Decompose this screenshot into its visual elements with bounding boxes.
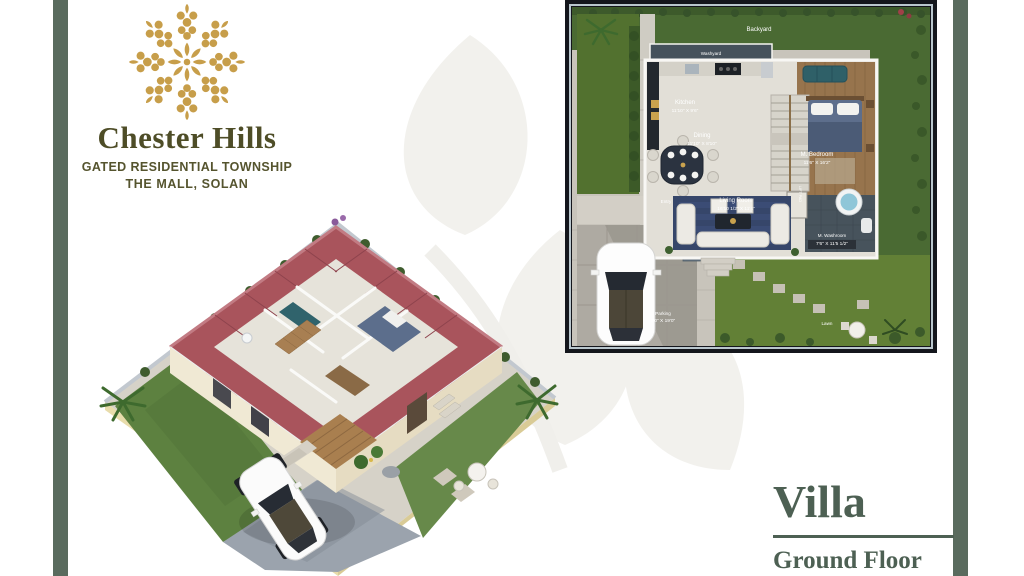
label-lift-pad: LIFT PAD	[798, 186, 802, 203]
title-divider	[773, 535, 954, 538]
label-parking: Parking	[655, 311, 671, 316]
label-washroom: M. Washroom	[818, 233, 847, 238]
svg-text:11'10" X 8'10": 11'10" X 8'10"	[687, 141, 717, 147]
label-bedroom: M. Bedroom	[801, 152, 834, 158]
floor-plan-panel: Backyard Washyard Kitchen 11'10" X 9'6" …	[565, 0, 937, 358]
label-living-room: Living Room	[719, 198, 752, 204]
brand-block: Chester Hills GATED RESIDENTIAL TOWNSHIP…	[77, 0, 297, 191]
page-title: Villa	[773, 474, 954, 529]
label-backyard: Backyard	[746, 27, 771, 33]
svg-text:9'0" X 19'0": 9'0" X 19'0"	[651, 318, 676, 324]
left-accent-bar	[53, 0, 68, 576]
svg-text:7'6" X 11'5 1/2": 7'6" X 11'5 1/2"	[816, 241, 848, 247]
mandala-flower-logo-icon	[129, 4, 245, 120]
page-subtitle: Ground Floor	[773, 547, 954, 575]
brand-name: Chester Hills	[77, 122, 297, 153]
brand-location: THE MALL, SOLAN	[77, 177, 297, 191]
brand-tagline: GATED RESIDENTIAL TOWNSHIP	[77, 160, 297, 174]
right-accent-bar	[953, 0, 968, 576]
svg-text:16'10 1/2" X 11'4": 16'10 1/2" X 11'4"	[717, 206, 755, 212]
svg-text:11'6" X 16'2": 11'6" X 16'2"	[804, 160, 831, 166]
title-block: Villa Ground Floor	[773, 474, 954, 575]
label-entry: Entry	[661, 199, 672, 204]
label-kitchen: Kitchen	[675, 100, 695, 106]
brochure-page: Chester Hills GATED RESIDENTIAL TOWNSHIP…	[0, 0, 1024, 576]
label-washyard: Washyard	[701, 51, 722, 56]
isometric-villa-render	[85, 210, 580, 576]
label-lawn: Lawn	[822, 321, 833, 326]
label-dining: Dining	[693, 133, 710, 139]
svg-text:11'10" X 9'6": 11'10" X 9'6"	[672, 108, 699, 114]
